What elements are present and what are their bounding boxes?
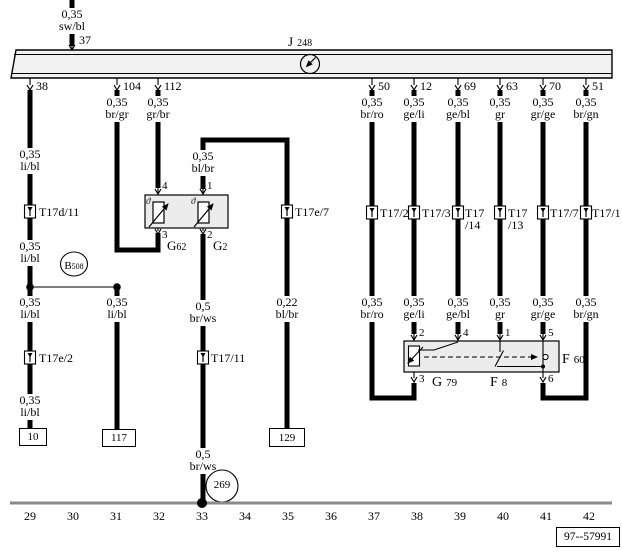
bus-label-j248: J 248 <box>288 33 312 51</box>
connector-t17e-2: T17e/2 <box>39 352 73 364</box>
pin-g79-4: 4 <box>463 327 469 339</box>
pin-f8-1: 1 <box>505 327 511 339</box>
pin-f60-5: 5 <box>548 327 554 339</box>
bus-pin-38: 38 <box>36 79 48 94</box>
track-number: 39 <box>449 509 471 524</box>
wire-label-br-gr: 0,35br/gr <box>105 96 128 120</box>
bus-bar <box>11 50 612 78</box>
wire-label-li-bl: 0,35li/bl <box>20 394 41 418</box>
component-f8: F 8 <box>490 373 507 391</box>
wire-label-bl-br: 0,35bl/br <box>192 150 215 174</box>
bus-pin-112: 112 <box>164 79 182 94</box>
wire-label-gr-br: 0,35gr/br <box>146 96 169 120</box>
track-number: 35 <box>277 509 299 524</box>
wire-label-br-ro: 0,35br/ro <box>360 296 383 320</box>
connector-t17d-11: T17d/11 <box>39 206 79 218</box>
terminal-117: 117 <box>102 429 136 447</box>
diagram-number-box: 97--57991 <box>556 527 620 547</box>
wire-label-gr-ge: 0,35gr/ge <box>531 96 556 120</box>
wire-label-gr: 0,35gr <box>490 296 511 320</box>
wire-label-bl-br-022: 0,22bl/br <box>276 296 299 320</box>
track-number: 31 <box>105 509 127 524</box>
bus-pin-104: 104 <box>123 79 141 94</box>
terminal-10: 10 <box>19 428 47 446</box>
connector-t17e-7: T17e/7 <box>295 206 329 218</box>
track-number: 34 <box>234 509 256 524</box>
connector-t17-2: T17/2 <box>380 207 409 219</box>
connector-t17-11: T17/11 <box>211 352 245 364</box>
track-number: 36 <box>320 509 342 524</box>
track-number: 33 <box>191 509 213 524</box>
wire-label-br-gn: 0,35br/gn <box>573 96 598 120</box>
wire-label-li-bl: 0,35li/bl <box>20 296 41 320</box>
connector-symbols <box>25 205 592 364</box>
wire-label-ge-bl: 0,35ge/bl <box>446 96 470 120</box>
theta-icon: ϑ <box>146 196 150 206</box>
component-g2: G2 <box>213 237 227 255</box>
wire-label-ge-li: 0,35ge/li <box>403 296 424 320</box>
bus-pin-69: 69 <box>464 79 476 94</box>
track-number: 41 <box>535 509 557 524</box>
connector-t17-7: T17/7 <box>550 207 579 219</box>
connector-t17-3: T17/3 <box>422 207 451 219</box>
wire-label-br-gn: 0,35br/gn <box>573 296 598 320</box>
track-number: 32 <box>148 509 170 524</box>
bus-pin-37: 37 <box>79 33 91 48</box>
wire-label-li-bl: 0,35li/bl <box>20 240 41 264</box>
track-number: 38 <box>406 509 428 524</box>
bus-pin-50: 50 <box>378 79 390 94</box>
track-number: 30 <box>62 509 84 524</box>
throttle-box-g79-f8-f60 <box>404 341 559 372</box>
wire-label-li-bl: 0,35li/bl <box>20 148 41 172</box>
component-b508: B508 <box>60 256 88 274</box>
bus-pin-63: 63 <box>506 79 518 94</box>
track-number: 42 <box>578 509 600 524</box>
pin-f60-6: 6 <box>548 373 554 385</box>
wire-label-br-ws: 0,5br/ws <box>190 300 217 324</box>
wire-label-br-ws: 0,5br/ws <box>190 448 217 472</box>
component-g62: G62 <box>167 237 186 255</box>
theta-icon: ϑ <box>191 196 195 206</box>
wire-label-sw-bl: 0,35sw/bl <box>59 8 85 32</box>
wiring-diagram: 0,35sw/bl 37 J 248 38 104 112 50 12 69 6… <box>0 0 622 553</box>
component-g79: G 79 <box>432 373 457 391</box>
terminal-129: 129 <box>269 428 305 447</box>
track-number: 40 <box>492 509 514 524</box>
wire-label-gr-ge: 0,35gr/ge <box>531 296 556 320</box>
pin-g79-2: 2 <box>419 327 425 339</box>
wiring-graphics <box>0 0 622 553</box>
component-f60: F 60 <box>562 350 585 368</box>
bus-pin-51: 51 <box>592 79 604 94</box>
ground-point-269: 269 <box>206 479 238 491</box>
pin-g2-1: 1 <box>207 180 213 192</box>
pin-g2-2: 2 <box>207 229 213 241</box>
pin-g79-3: 3 <box>419 373 425 385</box>
track-number: 37 <box>363 509 385 524</box>
track-number: 29 <box>19 509 41 524</box>
wire-label-ge-li: 0,35ge/li <box>403 96 424 120</box>
connector-t17-1: T17/1 <box>592 207 621 219</box>
connector-t17-13: T17/13 <box>508 207 527 231</box>
wire-label-ge-bl: 0,35ge/bl <box>446 296 470 320</box>
wire-label-br-ro: 0,35br/ro <box>360 96 383 120</box>
sensor-box-g62-g2 <box>145 195 228 228</box>
connector-t17-14: T17/14 <box>465 207 484 231</box>
wire-label-gr: 0,35gr <box>490 96 511 120</box>
bus-pin-12: 12 <box>420 79 432 94</box>
ground-rail <box>10 498 612 508</box>
pin-g62-4: 4 <box>162 180 168 192</box>
k-arrow-icon <box>301 55 320 74</box>
bus-pin-70: 70 <box>549 79 561 94</box>
wire-label-li-bl: 0,35li/bl <box>107 296 128 320</box>
